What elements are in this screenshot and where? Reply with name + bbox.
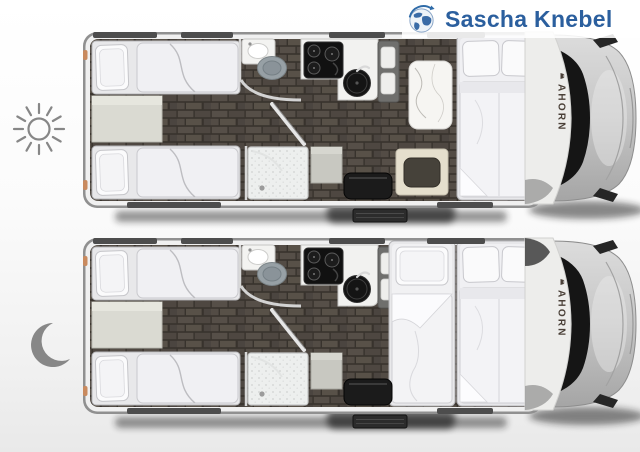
entry-seat: [344, 173, 392, 199]
windows: [93, 32, 493, 208]
floorplan-day: AHORN: [75, 30, 640, 242]
window-top: [329, 32, 385, 38]
entry-step: [353, 415, 407, 428]
toilet: [258, 263, 287, 286]
floor: [90, 39, 540, 201]
double-bed: [457, 35, 541, 200]
tail-light-top: [83, 256, 88, 266]
washbasin: [242, 245, 275, 270]
entry-seat: [344, 379, 392, 405]
shower: [248, 353, 308, 405]
brand-text: AHORN: [556, 290, 567, 338]
twin-bed-top: [92, 247, 240, 300]
toilet: [258, 57, 287, 80]
dinette-table: [409, 61, 452, 129]
sink: [344, 276, 371, 303]
travel-seat: [396, 149, 448, 195]
shower-door: [272, 104, 304, 144]
washbasin: [242, 39, 275, 64]
mirror-bottom: [593, 188, 618, 202]
window-bottom: [127, 202, 221, 208]
dealer-name: Sascha Knebel: [445, 6, 613, 33]
window-bottom: [127, 408, 221, 414]
window-top: [181, 238, 233, 244]
stove: [304, 42, 343, 78]
mirror-bottom: [593, 394, 618, 408]
mirror-top: [593, 240, 618, 254]
double-bed: [457, 241, 541, 406]
sun-icon: [12, 102, 66, 156]
screenshot-root: Sascha Knebel AHORN AHORN: [0, 0, 640, 452]
brand-label: AHORN: [556, 279, 567, 338]
window-bottom: [437, 408, 493, 414]
side-cabinet: [311, 353, 342, 389]
kitchen: [301, 39, 378, 100]
furniture: [92, 35, 541, 200]
cab: [527, 240, 636, 408]
dealer-logo: Sascha Knebel: [402, 0, 640, 38]
tail-light-bottom: [83, 386, 88, 396]
moon-icon: [22, 320, 72, 370]
coach-body: [83, 238, 543, 414]
bathroom-wall: [241, 80, 301, 100]
window-top: [181, 32, 233, 38]
twin-bed-bottom: [92, 146, 240, 199]
window-top: [427, 238, 485, 244]
brand-text: AHORN: [556, 84, 567, 132]
crown-icon: [561, 279, 566, 285]
window-bottom: [437, 202, 493, 208]
dinette-bench: [378, 41, 399, 102]
side-cabinet: [311, 147, 342, 183]
alcove-panel: AHORN: [525, 238, 571, 410]
stove: [304, 248, 343, 284]
dinette-bench: [378, 247, 399, 308]
rear-cabinet: [92, 96, 162, 142]
alcove-panel: AHORN: [525, 32, 571, 204]
shower: [248, 147, 308, 199]
window-top: [93, 32, 157, 38]
floorplan-night: AHORN: [75, 236, 640, 448]
floor: [90, 245, 540, 407]
shower-door: [272, 310, 304, 350]
brand-label: AHORN: [556, 73, 567, 132]
windows: [93, 238, 493, 414]
windshield: [529, 42, 590, 194]
entry-step: [353, 209, 407, 222]
rear-cabinet: [92, 302, 162, 348]
tail-light-bottom: [83, 180, 88, 190]
vehicle-shadow: [115, 201, 640, 223]
window-top: [93, 238, 157, 244]
globe-icon: [406, 4, 437, 35]
twin-bed-bottom: [92, 352, 240, 405]
crown-icon: [561, 73, 566, 79]
windshield: [529, 248, 590, 400]
cab: [527, 34, 636, 202]
vehicle-shadow: [115, 407, 640, 429]
bathroom-wall: [241, 286, 301, 306]
coach-body: [83, 32, 543, 208]
twin-bed-top: [92, 41, 240, 94]
tail-light-top: [83, 50, 88, 60]
kitchen: [301, 245, 378, 306]
furniture: [92, 241, 541, 406]
window-top: [329, 238, 385, 244]
sink: [344, 70, 371, 97]
single-bed: [389, 241, 455, 406]
